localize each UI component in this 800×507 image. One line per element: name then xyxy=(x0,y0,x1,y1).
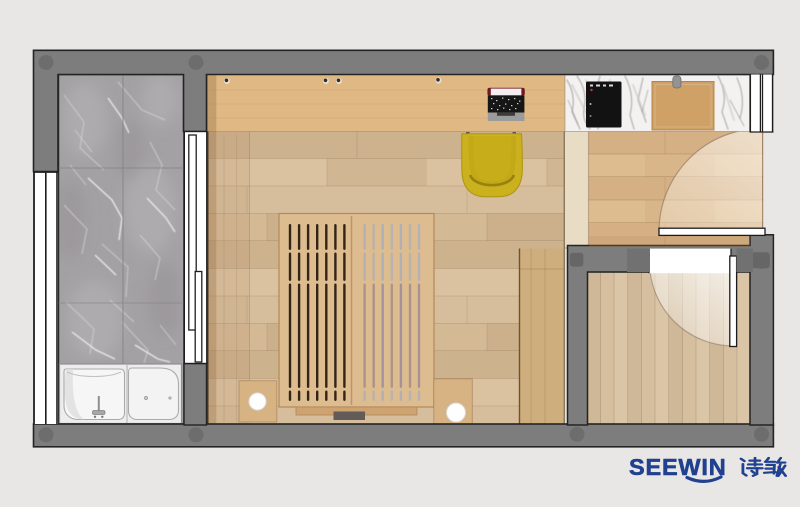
svg-text:SEEWIN: SEEWIN xyxy=(629,454,727,480)
